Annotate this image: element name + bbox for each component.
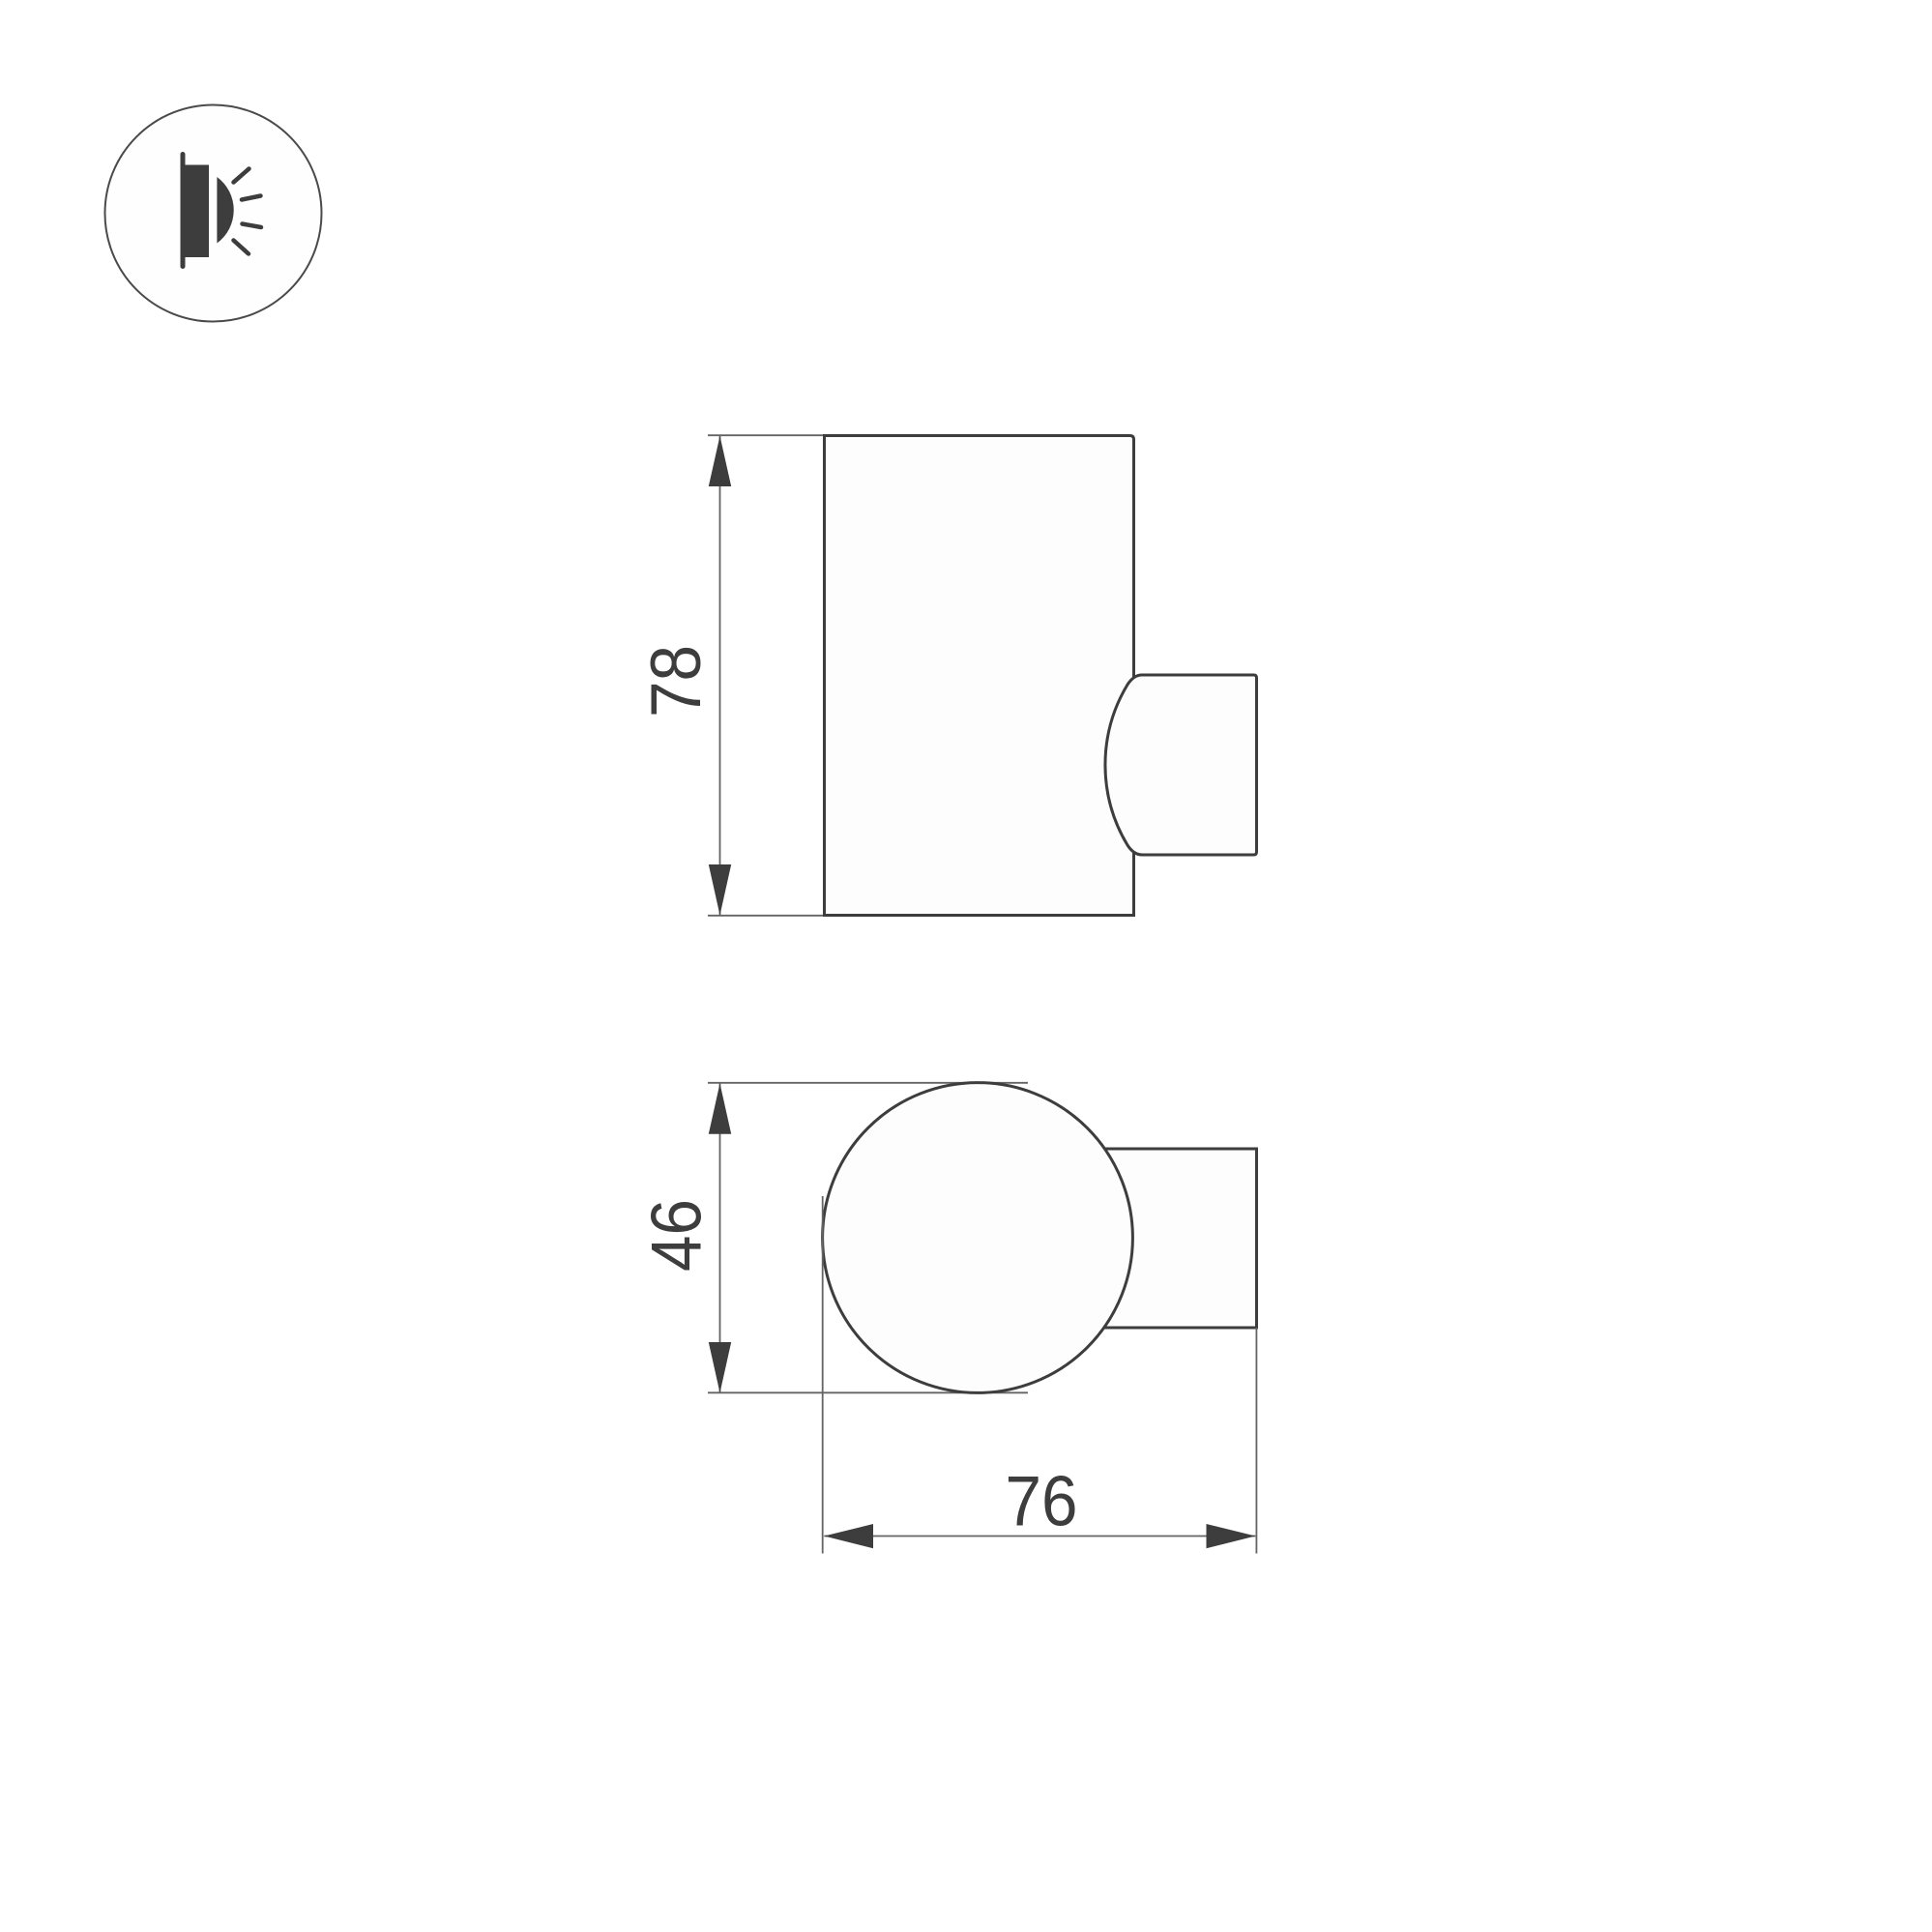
svg-text:46: 46 <box>636 1199 717 1272</box>
svg-text:76: 76 <box>1006 1461 1078 1541</box>
svg-text:78: 78 <box>635 645 716 717</box>
